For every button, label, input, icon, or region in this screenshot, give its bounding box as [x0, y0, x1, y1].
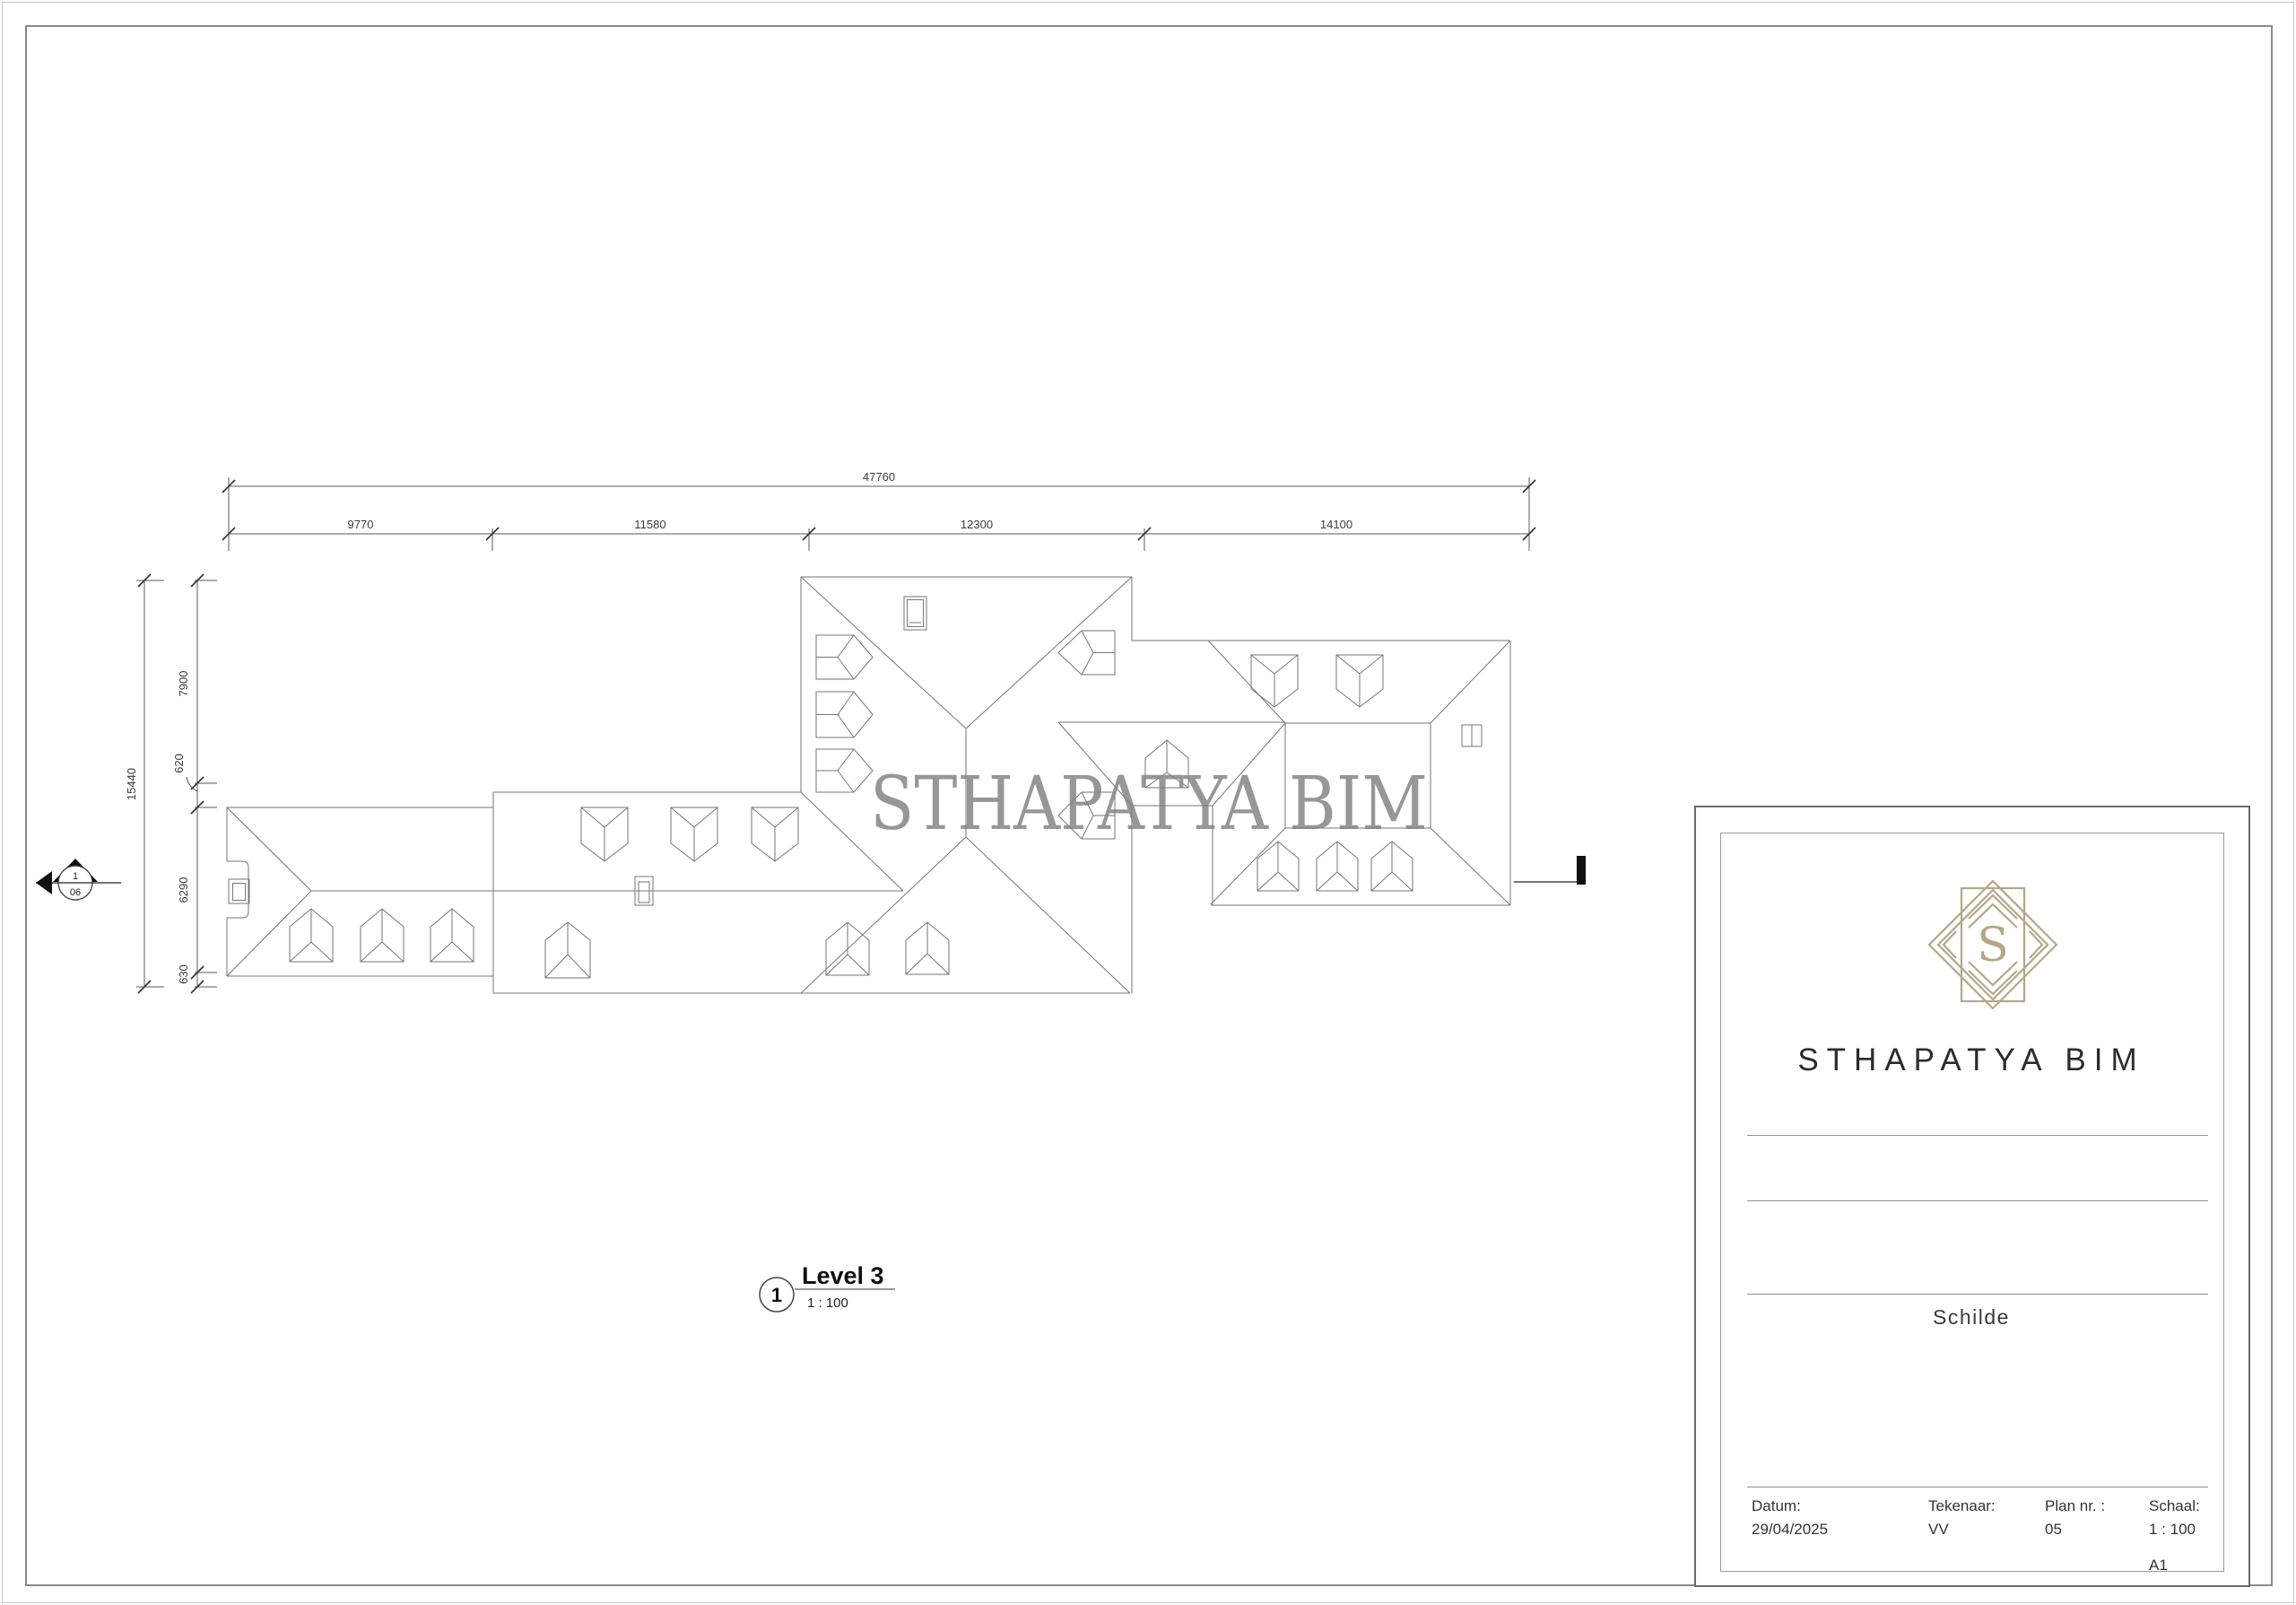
watermark-text: STHAPATYA BIM [870, 762, 1428, 847]
field-schaal-value: 1 : 100 [2149, 1521, 2200, 1539]
left-wing-roof [227, 807, 903, 976]
field-datum-value: 29/04/2025 [1752, 1521, 1828, 1539]
field-plannr: Plan nr. : 05 [2045, 1497, 2105, 1539]
logo-letter: S [1977, 919, 2009, 973]
field-schaal: Schaal: 1 : 100 [2149, 1497, 2200, 1539]
title-block-rule-1 [1747, 1135, 2208, 1136]
field-tekenaar: Tekenaar: VV [1928, 1497, 1996, 1539]
dim-left-total: 15440 [125, 768, 138, 800]
field-plannr-value: 05 [2045, 1521, 2105, 1539]
field-tekenaar-label: Tekenaar: [1928, 1497, 1996, 1515]
paper-size: A1 [2149, 1557, 2168, 1574]
dim-left-seg-2: 620 [172, 754, 186, 773]
title-block-rule-3 [1747, 1294, 2208, 1295]
field-schaal-label: Schaal: [2149, 1497, 2200, 1515]
section-number: 1 [73, 871, 78, 882]
title-block-rule-4 [1747, 1487, 2208, 1487]
dim-top-seg-3: 12300 [961, 518, 993, 531]
view-name: Level 3 [802, 1262, 884, 1289]
section-sheet: 06 [70, 887, 81, 898]
dim-top-seg-4: 14100 [1320, 518, 1352, 531]
dim-top-seg-2: 11580 [634, 518, 665, 531]
field-plannr-label: Plan nr. : [2045, 1497, 2105, 1515]
section-cut-mark [1514, 856, 1586, 885]
section-arrow-icon [36, 871, 52, 894]
dim-top-total: 47760 [863, 470, 895, 484]
drawing-sheet: 47760 9770 11580 12300 14100 15440 7900 … [0, 0, 2296, 1605]
field-datum-label: Datum: [1752, 1497, 1828, 1515]
view-title: 1 Level 3 1 : 100 [760, 1262, 895, 1312]
dimension-left: 15440 7900 620 6290 630 [125, 574, 217, 993]
project-name: Schilde [1720, 1305, 2222, 1330]
dim-left-seg-3: 6290 [177, 877, 190, 903]
dim-left-seg-4: 630 [177, 964, 190, 984]
dim-top-seg-1: 9770 [348, 518, 374, 531]
dimension-top: 47760 9770 11580 12300 14100 [222, 470, 1535, 551]
company-name: STHAPATYA BIM [1720, 1042, 2222, 1078]
view-number: 1 [771, 1284, 782, 1306]
company-logo-icon: S [1924, 876, 2062, 1014]
field-tekenaar-value: VV [1928, 1521, 1996, 1539]
view-scale: 1 : 100 [807, 1295, 848, 1311]
field-datum: Datum: 29/04/2025 [1752, 1497, 1828, 1539]
section-marker: 1 06 [36, 859, 121, 900]
title-block-rule-2 [1747, 1200, 2208, 1201]
dim-left-seg-1: 7900 [177, 671, 190, 697]
skylight [904, 597, 926, 630]
